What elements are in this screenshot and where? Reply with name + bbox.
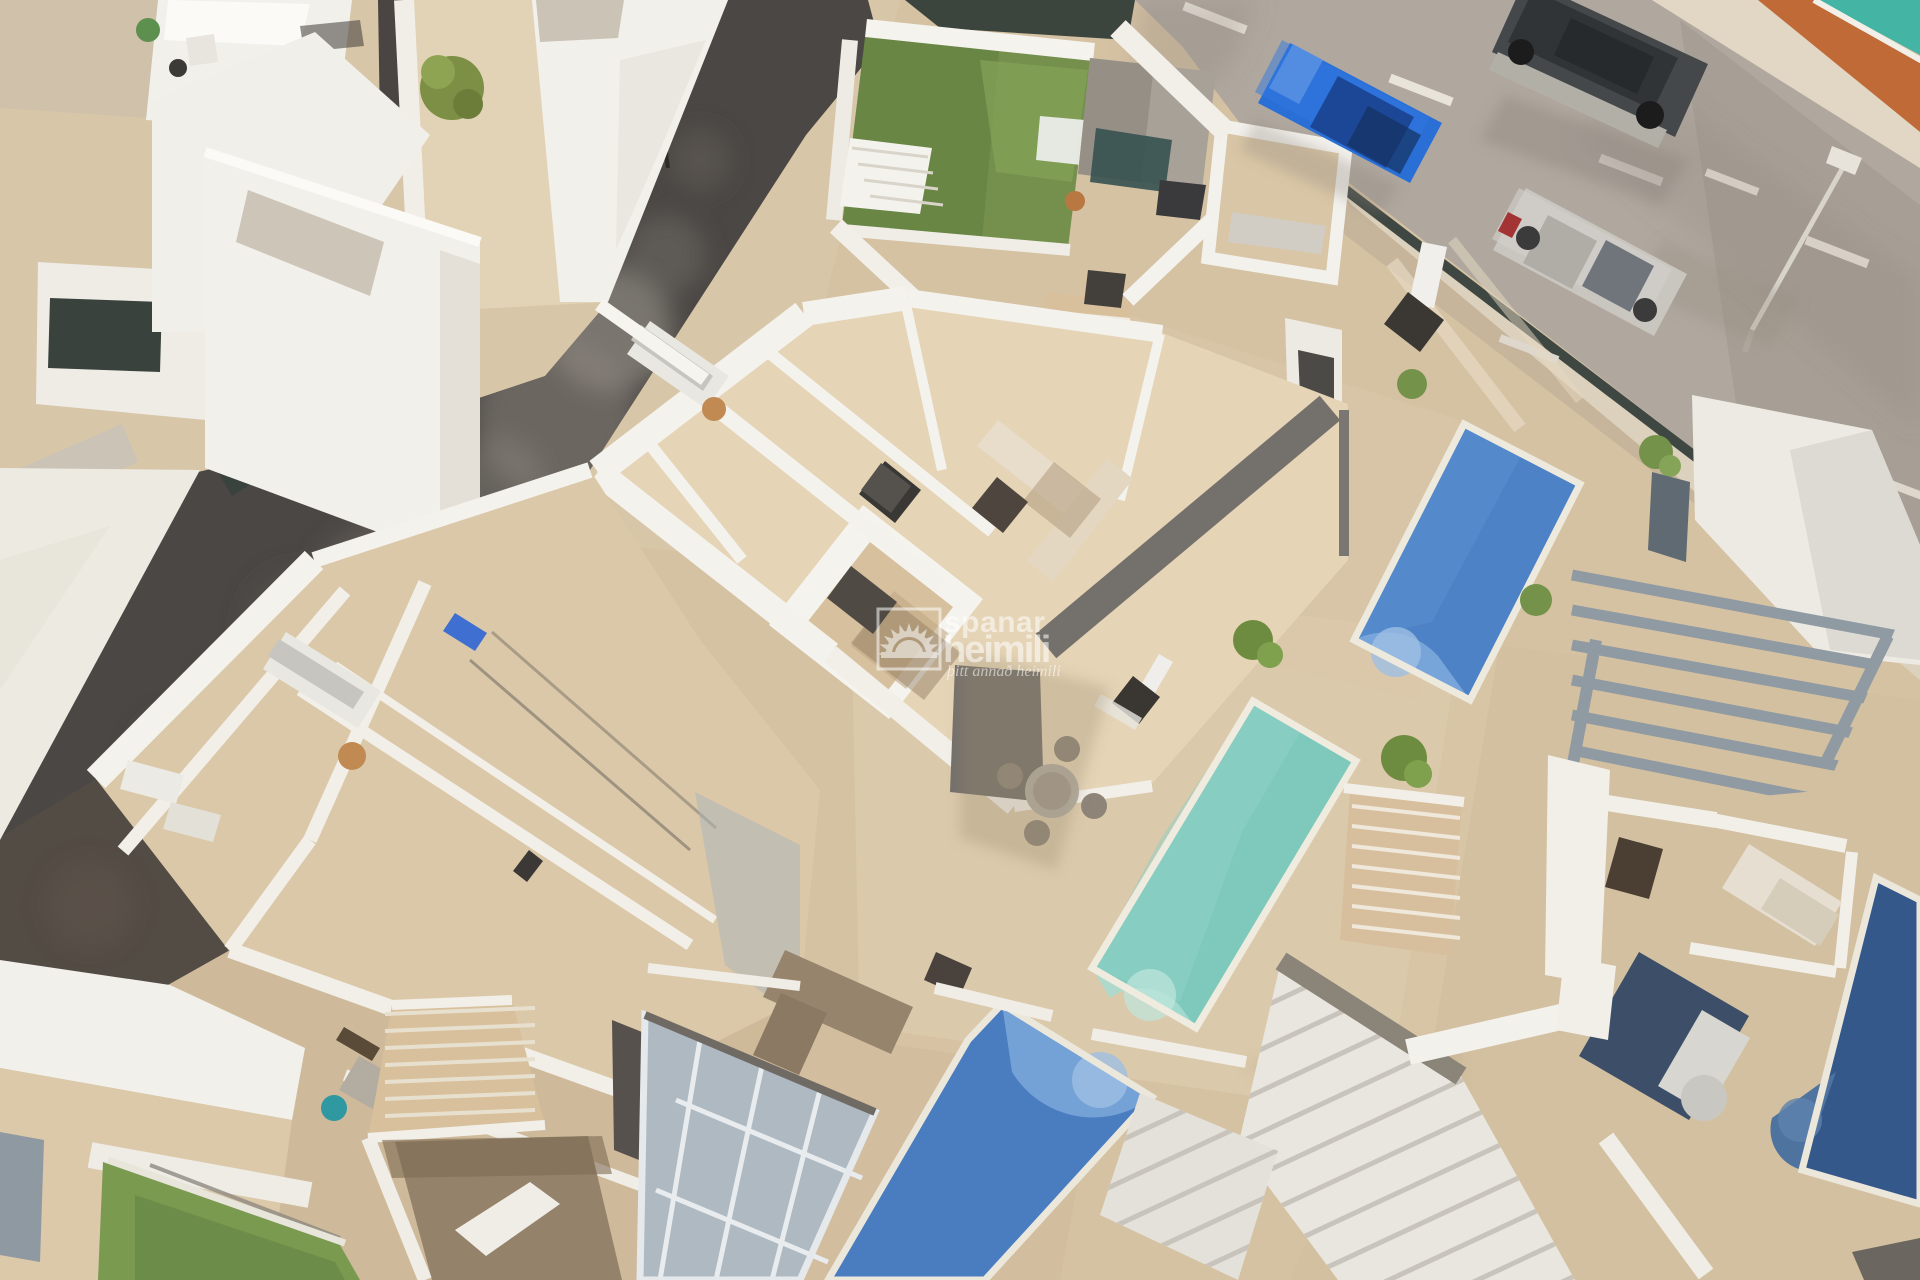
svg-text:þitt annað heimili: þitt annað heimili — [945, 663, 1061, 680]
